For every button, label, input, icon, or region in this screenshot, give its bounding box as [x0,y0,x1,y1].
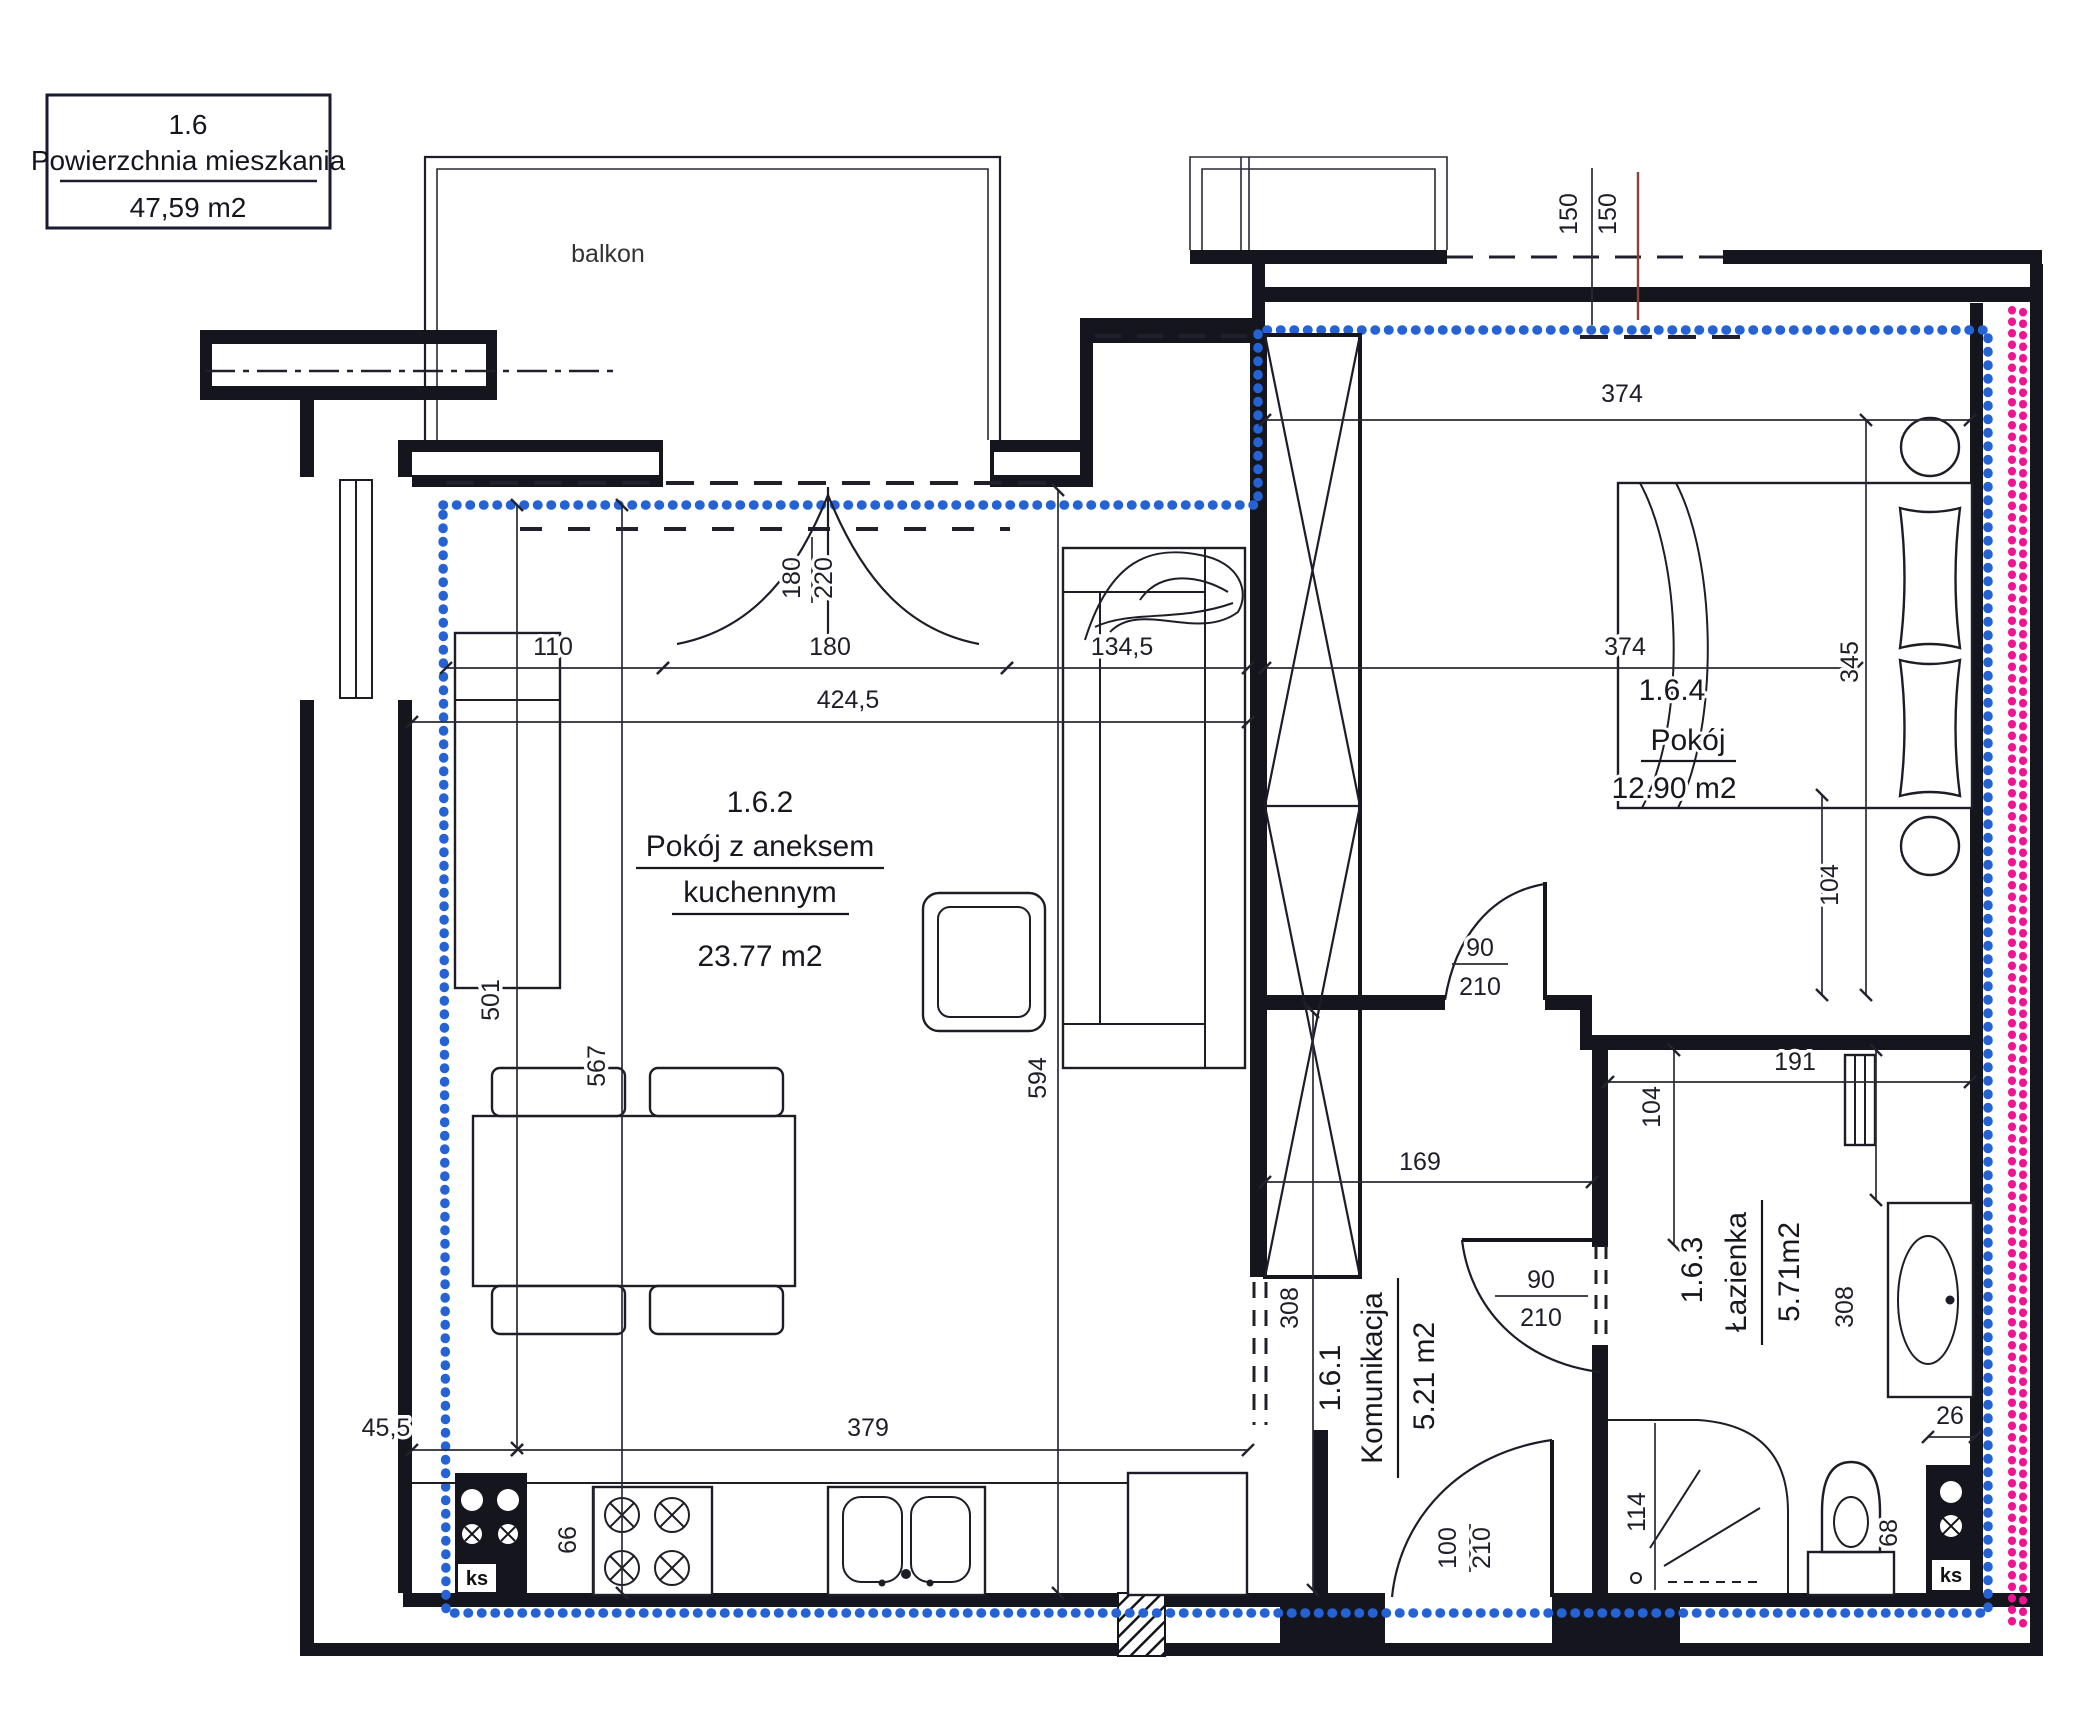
bedroom-door-h: 210 [1459,973,1501,1001]
dim-living-501: 501 [477,979,505,1021]
dim-bedroom-345: 345 [1836,641,1864,683]
entry-door-w: 100 [1434,1527,1462,1569]
room-bedroom-id: 1.6.4 [1639,674,1706,707]
stove [593,1487,712,1595]
nightstand-top [1901,418,1959,476]
room-bath-id: 1.6.3 [1676,1237,1709,1304]
kitchen-shaft-ks: ks [455,1473,527,1597]
dim-living-424: 424,5 [817,686,880,714]
room-living-name1: Pokój z aneksem [646,830,874,863]
room-bedroom-area: 12.90 m2 [1611,772,1736,805]
entry-door-h: 210 [1468,1527,1496,1569]
bedroom-door-w: 90 [1466,934,1494,962]
bath-shaft-ks: ks [1926,1465,1976,1597]
info-box-area: 47,59 m2 [130,192,247,223]
kitchen-sink [828,1487,985,1595]
balcony-label: balkon [571,240,645,268]
room-bath-name: Łazienka [1720,1212,1753,1332]
dim-bed-gap-104: 104 [1816,864,1844,906]
left-wall-window [300,477,412,700]
room-hall-area: 5.21 m2 [1408,1322,1441,1430]
dim-bath-104: 104 [1638,1086,1666,1128]
kitchen-tall-cabinet [455,633,560,988]
floor-plan-drawing: ks [0,0,2097,1733]
info-box-label: Powierzchnia mieszkania [31,145,346,176]
room-living-area: 23.77 m2 [697,940,822,973]
dim-toilet-68: 68 [1875,1519,1903,1547]
info-box: 1.6 Powierzchnia mieszkania 47,59 m2 [31,95,346,228]
ks-label-bath: ks [1940,1565,1962,1587]
dim-living-455: 45,5 [362,1414,411,1442]
nightstand-bottom [1901,817,1959,875]
dim-window150-left: 150 [1555,193,1583,235]
neighbor-balcony-outline [1190,157,1447,250]
dim-sofa-134: 134,5 [1091,633,1154,661]
dim-kitchen-110: 110 [533,633,573,661]
washbasin [1888,1203,1973,1397]
dim-bath-26: 26 [1936,1402,1964,1430]
entry-door [1392,1440,1552,1597]
dim-living-567: 567 [583,1045,611,1087]
dim-bedroom-374-mid: 374 [1604,633,1646,661]
dim-hall-169: 169 [1399,1148,1441,1176]
bathroom-radiator [1845,1055,1875,1145]
dim-bath-191: 191 [1774,1048,1816,1076]
info-box-unit: 1.6 [169,109,208,140]
dim-living-379: 379 [847,1414,889,1442]
balcony-door-size-w: 180 [778,557,806,599]
dim-hall-308: 308 [1276,1287,1304,1329]
bath-door-w: 90 [1527,1266,1555,1294]
dim-window150-right: 150 [1594,193,1622,235]
room-bath-area: 5.71m2 [1773,1222,1806,1322]
dim-shower-114: 114 [1623,1492,1651,1532]
dim-living-594: 594 [1024,1057,1052,1099]
dining-table [473,1068,795,1334]
room-hall-name: Komunikacja [1356,1292,1389,1464]
armchair [923,893,1045,1031]
ks-label-kitchen: ks [466,1568,488,1590]
room-bedroom-name: Pokój [1650,724,1725,757]
boundary-pink [2012,310,2023,1628]
balcony-door-size-h: 220 [810,557,838,599]
room-living-id: 1.6.2 [727,786,794,819]
dim-bath-308: 308 [1831,1286,1859,1328]
dim-stove-66: 66 [554,1526,582,1554]
balcony-outline [425,157,1000,440]
room-living-name2: kuchennym [683,876,836,909]
room-hall-id: 1.6.1 [1314,1345,1347,1412]
bed [1618,483,1972,808]
bath-door-h: 210 [1520,1304,1562,1332]
dim-bedroom-374-top: 374 [1601,380,1643,408]
dim-balcony-door-180: 180 [809,633,851,661]
floor-plan-page: ks [0,0,2097,1733]
